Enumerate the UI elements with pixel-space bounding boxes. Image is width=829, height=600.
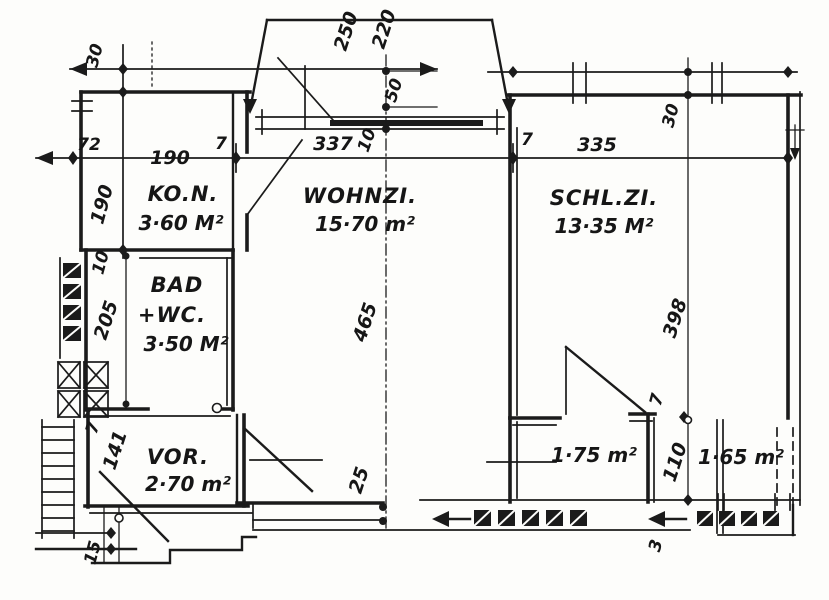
dim-7-door: 7 (646, 391, 668, 408)
floor-plan-scan: KO.N. 3·60 M² WOHNZI. 15·70 m² SCHL.ZI. … (0, 0, 829, 600)
label-bad-name: BAD (151, 273, 204, 297)
label-kon-area: 3·60 M² (139, 211, 224, 235)
label-schlzi-area: 13·35 M² (555, 214, 654, 238)
label-closet-area: 1·75 m² (551, 443, 637, 467)
dim-205: 205 (90, 298, 123, 343)
label-schlzi-name: SCHL.ZI. (550, 186, 659, 210)
dim-7-a: 7 (215, 134, 227, 154)
balcony-left-arrowhead (243, 99, 257, 114)
label-niche-area: 1·65 m² (698, 445, 784, 469)
bedroom-door-swing (566, 347, 645, 412)
dim-220: 220 (368, 7, 401, 52)
label-vor-area: 2·70 m² (145, 472, 231, 496)
corridor-arrow-right (648, 511, 665, 527)
label-wohnzi-name: WOHNZI. (303, 184, 417, 208)
dim-465: 465 (348, 300, 381, 345)
dim-190-height: 190 (86, 182, 118, 226)
label-kon-name: KO.N. (148, 182, 219, 206)
dim-30-topleft: 30 (82, 42, 107, 70)
dim-30-right: 30 (658, 102, 683, 130)
floor-plan-canvas: KO.N. 3·60 M² WOHNZI. 15·70 m² SCHL.ZI. … (0, 0, 829, 600)
dim-110: 110 (659, 440, 692, 485)
dim-190-width: 190 (150, 147, 190, 169)
dim-141: 141 (99, 428, 132, 473)
label-bad-area: 3·50 M² (144, 332, 229, 356)
dim-335: 335 (577, 134, 617, 156)
corridor-arrow-left (432, 511, 449, 527)
dim-3-corridor: 3 (645, 537, 667, 554)
label-vor-name: VOR. (147, 445, 209, 469)
dim-25: 25 (345, 464, 374, 496)
label-wohnzi-area: 15·70 m² (315, 212, 415, 236)
kon-door-swing (247, 140, 302, 215)
bedroom-top-wall (488, 63, 801, 103)
dim-72: 72 (77, 135, 101, 155)
dim-398: 398 (659, 296, 692, 341)
door-hinge-circle (213, 404, 222, 413)
corridor (253, 494, 800, 535)
dim-7-b: 7 (521, 130, 533, 150)
shaft-hatch (60, 258, 81, 358)
label-bad-name2: +WC. (138, 303, 206, 327)
dim-10-offset: 10 (354, 126, 381, 155)
dim-10-bad: 10 (88, 249, 113, 277)
room-schlzi (510, 58, 804, 506)
dim-50: 50 (381, 76, 407, 105)
corridor-hatch-squares-right (697, 511, 779, 526)
crosshatch-boxes (58, 362, 108, 417)
dim-250: 250 (330, 9, 363, 54)
dim-7-vor: 7 (82, 419, 104, 436)
corridor-hatch-squares-left (474, 510, 587, 526)
dim-337: 337 (313, 133, 353, 155)
